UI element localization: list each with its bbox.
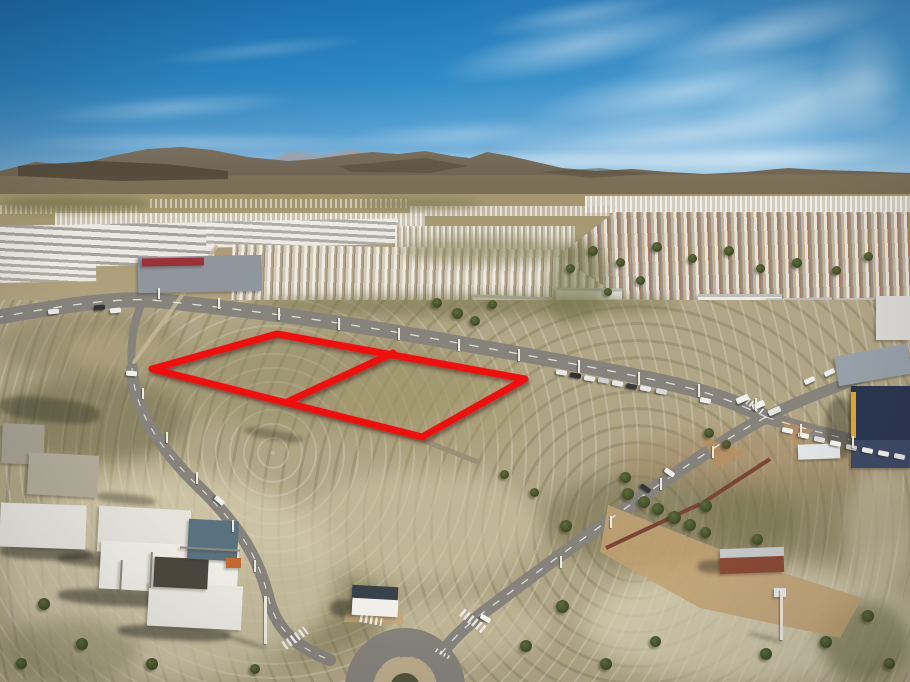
parcel-outline-layer [0,0,910,682]
red-parcel-outline [152,334,525,437]
aerial-photo-scene [0,0,910,682]
red-parcel-divider [287,353,393,402]
